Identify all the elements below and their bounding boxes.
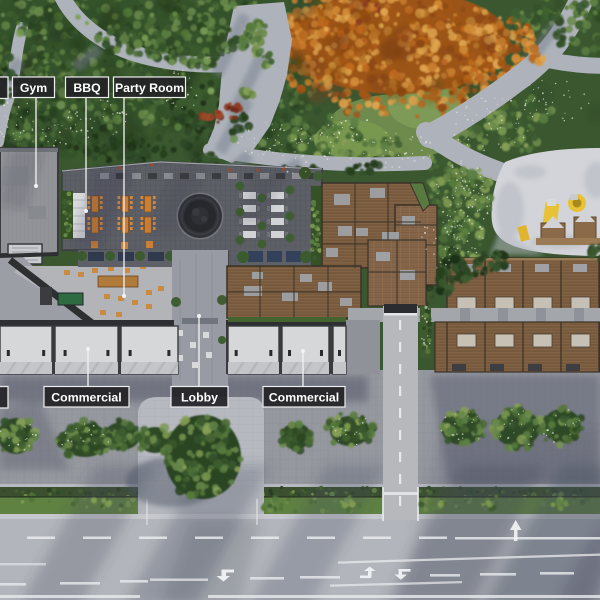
svg-text:Party Room: Party Room (115, 81, 184, 95)
svg-text:BBQ: BBQ (73, 81, 101, 95)
svg-text:Gym: Gym (20, 81, 47, 95)
svg-text:Commercial: Commercial (269, 390, 339, 404)
svg-text:Commercial: Commercial (51, 390, 121, 404)
svg-text:Lobby: Lobby (181, 390, 218, 404)
